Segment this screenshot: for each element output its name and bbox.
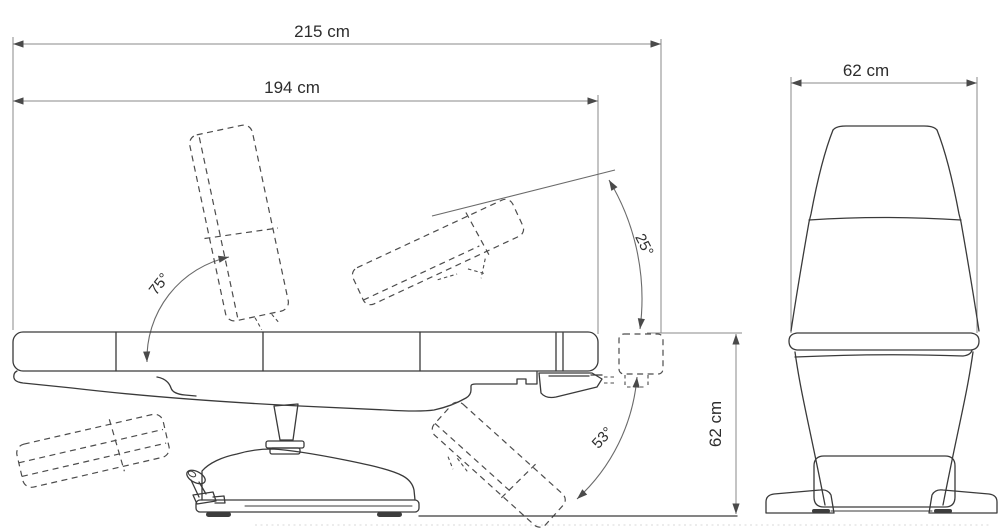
extension-line	[13, 37, 661, 333]
angle-legrest-up: 25°	[432, 170, 657, 329]
cushion-seams	[116, 332, 563, 371]
dim-seat-height: 62 cm	[647, 333, 742, 514]
front-view: 62 cm	[766, 61, 997, 513]
legrest-lowered-hardware	[444, 453, 469, 477]
legrest-raised-seam	[466, 211, 489, 256]
pedal-plate	[193, 492, 225, 504]
backrest-lowered-cushion	[15, 412, 171, 489]
angle-arc	[609, 180, 642, 329]
dim-lying-length-label: 194 cm	[264, 78, 320, 97]
column-collar	[266, 441, 304, 448]
legrest-raised-edge	[363, 246, 479, 300]
backrest-raised-outline	[183, 122, 298, 337]
dim-width: 62 cm	[791, 61, 977, 333]
foot-pedal	[185, 467, 225, 504]
base-foot-right	[377, 512, 402, 517]
footrest-horizontal-cushion	[619, 334, 663, 374]
backrest-raised-hinge	[255, 313, 280, 330]
angle-reference-line	[432, 170, 615, 216]
cushion-band	[13, 332, 598, 371]
dim-width-label: 62 cm	[843, 61, 889, 80]
seat-seam	[795, 350, 972, 357]
headrest-top	[833, 126, 937, 130]
extension-line	[791, 77, 977, 333]
lower-side-right	[943, 352, 973, 505]
chair-side-profile	[13, 332, 602, 517]
technical-drawing-svg: 215 cm 194 cm 62 cm 75° 25° 53°	[0, 0, 1000, 530]
chair-front-profile	[766, 126, 997, 513]
angle-legrest-down-label: 53°	[589, 424, 617, 452]
legrest-raised-cushion	[350, 197, 526, 308]
dim-lying-length: 194 cm	[13, 78, 598, 334]
dim-seat-height-label: 62 cm	[706, 401, 725, 447]
footrest-attach-marks	[604, 377, 617, 383]
lift-column	[274, 404, 298, 440]
footrest-horizontal-outline	[604, 334, 663, 387]
body-side-left	[791, 130, 833, 331]
body-side-right	[937, 130, 979, 331]
side-view: 215 cm 194 cm 62 cm 75° 25° 53°	[13, 22, 742, 530]
legrest-lowered-edge	[435, 423, 511, 491]
pedal-knob	[185, 467, 208, 486]
legrest-lowered-outline	[420, 396, 571, 530]
footrest-bracket	[539, 373, 602, 398]
legrest-lowered-seam	[500, 462, 536, 501]
angle-legrest-up-label: 25°	[631, 231, 656, 259]
base-box	[814, 456, 955, 507]
dimension-diagram: 215 cm 194 cm 62 cm 75° 25° 53°	[0, 0, 1000, 530]
lower-side-left	[795, 352, 825, 505]
backrest-lowered-edges	[19, 429, 166, 476]
legrest-raised-hardware	[438, 258, 492, 295]
backrest-lowered-outline	[14, 408, 172, 494]
dim-overall-length-label: 215 cm	[294, 22, 350, 41]
under-frame	[14, 371, 602, 411]
base-housing	[202, 449, 415, 500]
front-foot-right	[934, 509, 952, 513]
legrest-lowered-cushion	[429, 399, 569, 530]
seat-bolster-band	[789, 333, 979, 350]
front-foot-left	[812, 509, 830, 513]
backrest-lowered-seam	[109, 419, 124, 472]
backrest-raised-edge	[199, 137, 237, 317]
angle-legrest-down: 53°	[577, 377, 637, 499]
release-handle	[157, 377, 196, 396]
dim-overall-length: 215 cm	[13, 22, 661, 333]
headrest-seam	[809, 218, 961, 221]
backrest-raised-seam	[204, 223, 277, 243]
base-foot-left	[206, 512, 231, 517]
